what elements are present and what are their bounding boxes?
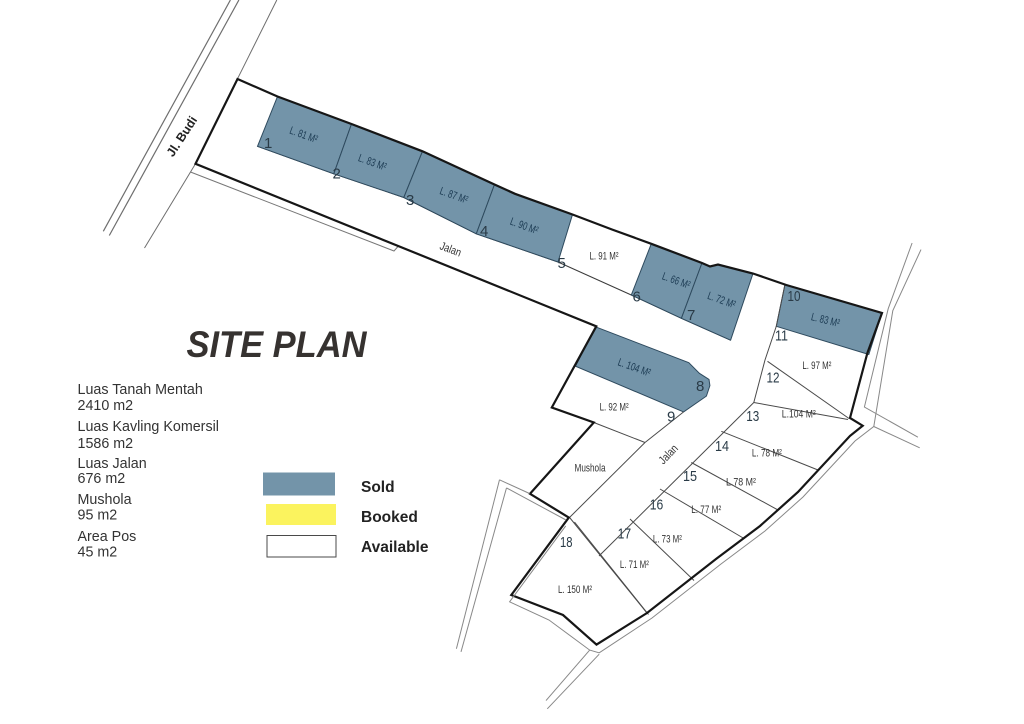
svg-text:Mushola: Mushola — [575, 462, 607, 474]
svg-text:7: 7 — [687, 307, 695, 324]
svg-text:L. 97 M²: L. 97 M² — [802, 360, 831, 372]
svg-text:5: 5 — [558, 255, 566, 272]
svg-text:11: 11 — [775, 328, 788, 345]
svg-text:L. 150 M²: L. 150 M² — [558, 584, 592, 596]
svg-text:Area Pos: Area Pos — [78, 529, 137, 545]
svg-text:Luas Tanah Mentah: Luas Tanah Mentah — [78, 382, 203, 398]
svg-text:Luas Jalan: Luas Jalan — [78, 456, 147, 472]
svg-text:L. 92 M²: L. 92 M² — [600, 402, 629, 414]
svg-text:2: 2 — [333, 166, 341, 183]
svg-text:L.104 M²: L.104 M² — [782, 409, 816, 421]
svg-text:6: 6 — [633, 289, 641, 306]
svg-text:4: 4 — [480, 223, 488, 240]
svg-text:L. 71 M²: L. 71 M² — [620, 559, 649, 571]
svg-text:3: 3 — [406, 192, 414, 209]
svg-text:Booked: Booked — [361, 509, 418, 526]
svg-text:L. 73 M²: L. 73 M² — [653, 533, 682, 545]
svg-text:L.78 M²: L.78 M² — [726, 477, 756, 489]
svg-text:15: 15 — [683, 468, 697, 485]
svg-text:17: 17 — [618, 526, 632, 543]
svg-text:Available: Available — [361, 539, 429, 556]
svg-text:1586 m2: 1586 m2 — [78, 436, 134, 452]
svg-text:12: 12 — [767, 370, 780, 387]
svg-text:45 m2: 45 m2 — [78, 545, 118, 561]
svg-text:L. 77 M²: L. 77 M² — [691, 504, 721, 516]
svg-text:95 m2: 95 m2 — [78, 508, 118, 524]
svg-text:676 m2: 676 m2 — [78, 471, 126, 487]
svg-text:18: 18 — [560, 534, 573, 551]
svg-text:9: 9 — [667, 409, 675, 426]
svg-text:L. 91 M²: L. 91 M² — [590, 251, 619, 263]
svg-text:SITE PLAN: SITE PLAN — [187, 324, 368, 365]
svg-text:Luas Kavling Komersil: Luas Kavling Komersil — [78, 419, 219, 435]
svg-text:L. 78 M²: L. 78 M² — [752, 447, 782, 459]
svg-text:10: 10 — [788, 288, 801, 305]
svg-text:Sold: Sold — [361, 479, 395, 496]
svg-text:Mushola: Mushola — [78, 492, 132, 508]
svg-text:16: 16 — [650, 497, 664, 514]
svg-text:2410 m2: 2410 m2 — [78, 398, 134, 414]
svg-text:13: 13 — [746, 408, 759, 425]
svg-text:14: 14 — [715, 438, 729, 455]
svg-text:8: 8 — [696, 378, 704, 395]
svg-text:1: 1 — [264, 135, 272, 152]
